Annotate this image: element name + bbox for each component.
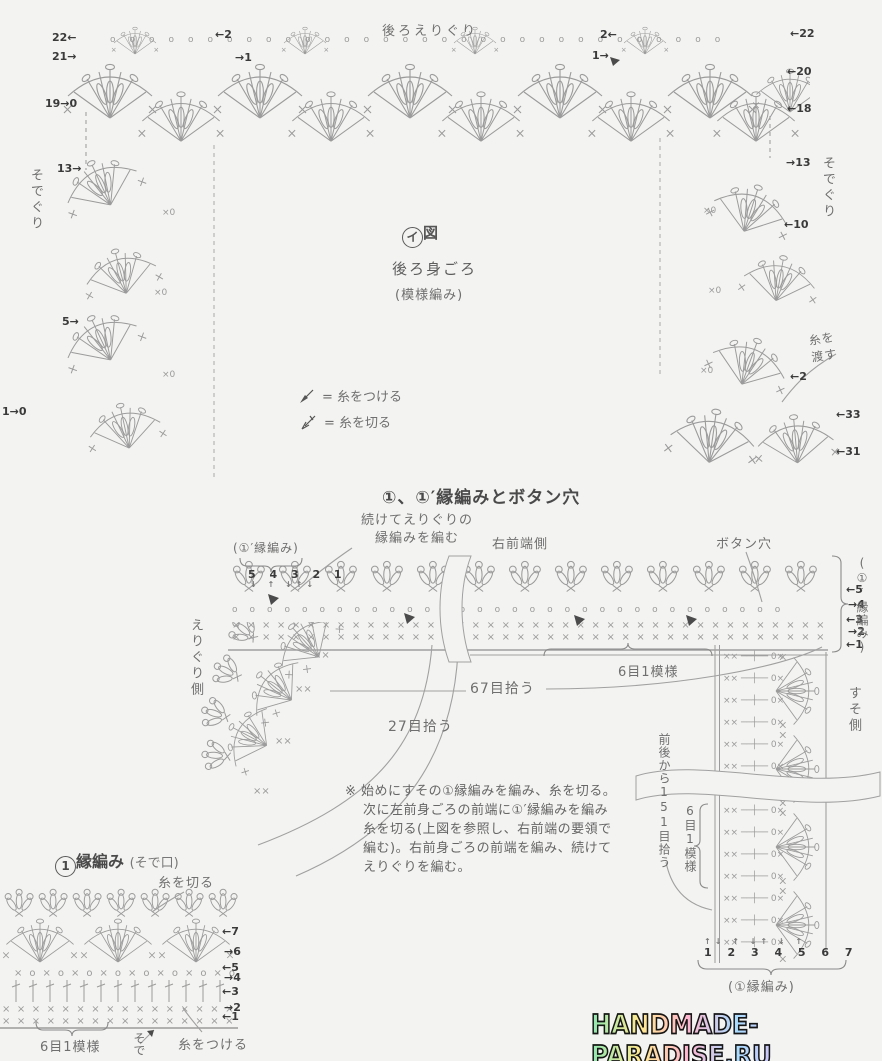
instruction-note-line: 編む)。右前身ごろの前端を編み、続けて	[363, 837, 612, 856]
armhole-label-left: そでぐり	[26, 168, 45, 232]
instruction-note-line: ※ 始めにすその①縁編みを編み、糸を切る。	[345, 780, 616, 799]
stitch-numbers: 1 2 3 4 5 6 7	[704, 946, 859, 959]
hem-side-label: すそ側	[844, 686, 863, 734]
row-marker: 5→	[62, 315, 79, 328]
instruction-note-line: えりぐりを編む。	[363, 856, 471, 875]
instruction-note-line: 次に左前身ごろの前端に①′縁編みを編み	[363, 799, 608, 818]
figure-title: イ図	[402, 222, 438, 248]
crochet-pattern-scan: oooooooooooooooooooooooooooooooo ×0 ×0 ×…	[0, 0, 882, 1061]
edging-1-label-bottom: (①縁編み)	[728, 976, 795, 995]
legend-cut-label: = 糸を切る	[324, 412, 391, 431]
row-marker: 1→0	[2, 405, 27, 418]
legend-cut-yarn: = 糸を切る	[300, 412, 391, 431]
sleeve-edging-title: 縁編み	[76, 852, 124, 871]
row-marker: 13→	[57, 162, 82, 175]
row-marker: 2←	[600, 28, 617, 41]
row-marker: 1→	[592, 49, 609, 62]
repeat-6st-bottom-label: 6目1模様	[40, 1036, 101, 1055]
repeat-6st-label: 6目1模様	[618, 661, 679, 680]
pattern-stitch-label: (模様編み)	[395, 284, 463, 303]
edging-1prime-label-left: (①′縁編み)	[233, 539, 299, 556]
row-marker: →6	[224, 945, 241, 958]
row-marker: ←2	[215, 28, 232, 41]
continue-neckline-note: 続けてえりぐりの 縁編みを編む	[332, 512, 502, 548]
row-marker: 21→	[52, 50, 77, 63]
row-marker: ←33	[836, 408, 861, 421]
row-marker: 19→0	[45, 97, 77, 110]
stitch-number-arrows: ↑↓ ↑ ↓↑ ↓ ↑	[704, 937, 806, 946]
right-front-edge-label: 右前端側	[492, 533, 548, 552]
figure-suffix: 図	[423, 224, 438, 242]
buttonhole-label: ボタン穴	[716, 533, 772, 552]
stitch-column-arrows: ↓ ↑ ↓↑↓	[250, 580, 317, 589]
row-marker: →1	[235, 51, 252, 64]
row-marker: →13	[786, 156, 811, 169]
instruction-note-line: 糸を切る(上図を参照し、右前端の要領で	[363, 818, 612, 837]
attach-yarn-label: 糸をつける	[178, 1034, 248, 1053]
edging-1-circled-number: 1	[55, 856, 76, 877]
row-marker: →4	[224, 971, 241, 984]
repeat-6st-vertical-label: 6目1模様	[682, 804, 699, 873]
figure-circled-mark: イ	[402, 227, 423, 248]
yarn-carry-label: 糸を渡す	[808, 327, 849, 366]
row-marker: ←20	[787, 65, 812, 78]
row-marker: ←7	[222, 925, 239, 938]
pickup-27-label: 27目拾う	[388, 716, 453, 736]
pickup-151-label: 前後から151目拾う	[656, 733, 673, 869]
edging-1prime-label-right: (①′縁編み)	[854, 556, 871, 655]
neckline-side-label: えりぐり側	[186, 618, 205, 698]
row-marker: 22←	[52, 31, 77, 44]
edging-section-heading: ①、①′縁編みとボタン穴	[382, 483, 580, 508]
cut-yarn-label: 糸を切る	[158, 872, 214, 891]
row-marker: ←1	[222, 1010, 239, 1023]
row-marker: ←3	[222, 985, 239, 998]
cut-yarn-icon	[300, 413, 318, 431]
armhole-label-right: そでぐり	[818, 156, 837, 220]
legend-attach-label: = 糸をつける	[322, 386, 402, 405]
row-marker: ←18	[787, 102, 812, 115]
watermark-handmade-paradise: HANDMADE-PARADISE.RU	[591, 1009, 882, 1061]
row-marker: ←10	[784, 218, 809, 231]
sleeve-label: そで	[131, 1032, 148, 1056]
row-marker: ←31	[836, 445, 861, 458]
pickup-67-label: 67目拾う	[470, 678, 535, 698]
row-marker: ←22	[790, 27, 815, 40]
back-bodice-label: 後ろ身ごろ	[392, 258, 477, 279]
row-marker: ←2	[790, 370, 807, 383]
attach-yarn-icon	[298, 387, 316, 405]
legend-attach-yarn: = 糸をつける	[298, 386, 402, 405]
sleeve-opening-label: (そで口)	[130, 856, 179, 871]
back-neckline-label: 後ろえりぐり	[382, 20, 478, 39]
